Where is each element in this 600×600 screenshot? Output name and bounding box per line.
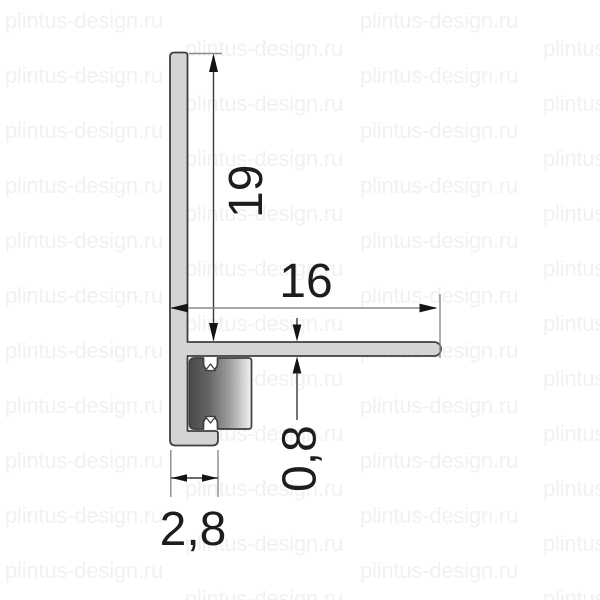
height-arrow-down bbox=[209, 323, 218, 342]
dimension-height: 19 bbox=[189, 54, 273, 342]
profile-base-insert bbox=[190, 358, 252, 429]
thickness-arrow-down bbox=[293, 325, 302, 342]
profile-cross-section-drawing: 19 16 0,8 2,8 bbox=[0, 0, 600, 600]
dimension-base-width: 2,8 bbox=[160, 450, 227, 556]
thickness-dimension-label: 0,8 bbox=[274, 425, 327, 492]
base-arrow-left bbox=[172, 474, 188, 482]
thickness-arrow-up bbox=[293, 357, 302, 374]
top-notch-ridge bbox=[206, 364, 216, 371]
depth-dimension-label: 16 bbox=[279, 255, 332, 308]
base-width-dimension-label: 2,8 bbox=[160, 503, 227, 556]
base-arrow-right bbox=[202, 474, 218, 482]
profile-drawing-canvas: plintus-design.ruplintus-design.ruplintu… bbox=[0, 0, 600, 600]
height-arrow-up bbox=[209, 54, 218, 73]
depth-arrow-right bbox=[420, 304, 438, 313]
bottom-notch-ridge bbox=[206, 417, 216, 424]
height-dimension-label: 19 bbox=[220, 165, 273, 218]
